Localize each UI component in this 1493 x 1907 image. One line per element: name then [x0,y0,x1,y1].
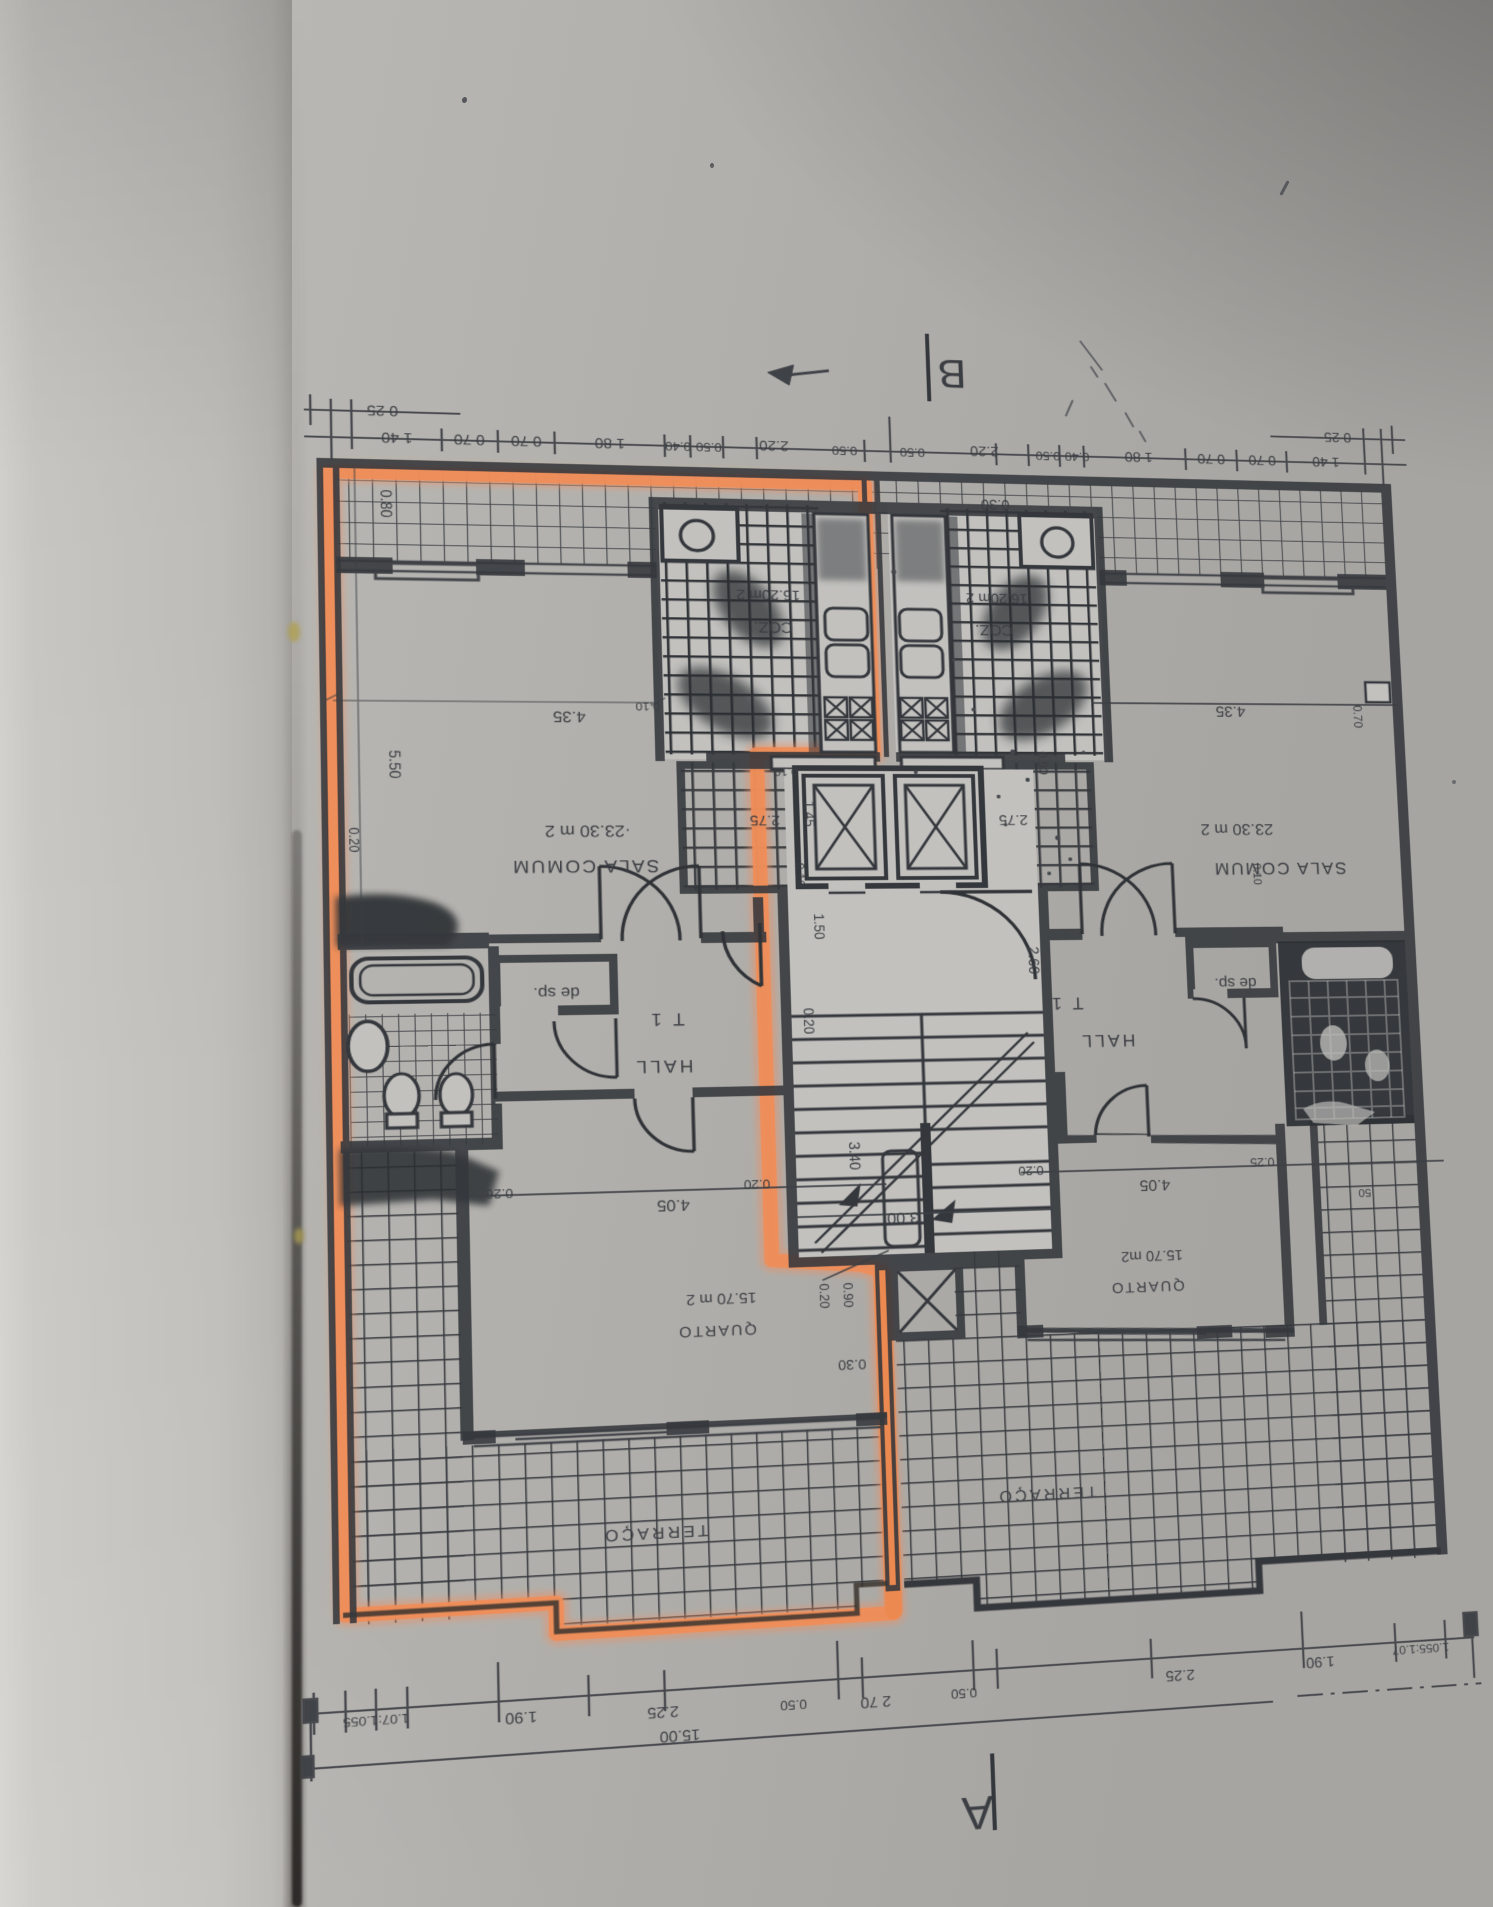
svg-text:0.26: 0.26 [486,1186,514,1201]
svg-text:0.20: 0.20 [800,1008,817,1035]
svg-text:0 25: 0 25 [1324,429,1352,444]
svg-text:QUARTO: QUARTO [1110,1277,1185,1296]
svg-text:COZ.: COZ. [754,618,793,635]
svg-text:23.30 m 2: 23.30 m 2 [1200,821,1273,839]
svg-text:A: A [960,1785,994,1840]
svg-text:0.25: 0.25 [1250,1155,1275,1169]
svg-text:0.70: 0.70 [1350,705,1365,728]
svg-text:HALL: HALL [633,1056,694,1077]
svg-text:0.90: 0.90 [840,1282,856,1307]
svg-text:0.30: 0.30 [838,1356,867,1373]
svg-text:0.50: 0.50 [832,444,858,458]
svg-text:0.10: 0.10 [1250,863,1264,885]
svg-text:B: B [937,351,968,397]
svg-text:2.60: 2.60 [1024,946,1042,974]
svg-text:15.70 m2: 15.70 m2 [1121,1246,1183,1264]
svg-text:0.50: 0.50 [780,1697,807,1714]
svg-text:1 40: 1 40 [381,429,413,446]
svg-text:0.20: 0.20 [744,1177,771,1192]
svg-text:4.05: 4.05 [1139,1176,1170,1194]
svg-text:COZ.: COZ. [975,621,1013,638]
svg-text:0.30: 0.30 [981,496,1010,512]
svg-text:2.20: 2.20 [970,443,999,459]
svg-text:4.35: 4.35 [1215,703,1245,719]
svg-text:3.00: 3.00 [887,1209,919,1227]
svg-text:1.90: 1.90 [1306,1652,1335,1670]
svg-text:0.50: 0.50 [951,1685,978,1701]
svg-text:50: 50 [1358,1186,1371,1199]
svg-text:2.75: 2.75 [750,812,780,828]
svg-text:1 40: 1 40 [1312,454,1340,469]
svg-text:16.20m 2: 16.20m 2 [966,590,1028,606]
svg-text:0.50: 0.50 [1035,449,1060,463]
svg-text:0.50: 0.50 [696,440,722,454]
svg-text:0.50: 0.50 [900,445,926,459]
svg-text:2.25: 2.25 [1165,1666,1195,1684]
svg-text:0.40: 0.40 [1065,450,1090,464]
svg-text:0.10: 0.10 [774,765,798,778]
svg-text:0.10: 0.10 [635,700,660,713]
svg-text:1 80: 1 80 [1124,449,1153,465]
svg-text:2 70: 2 70 [860,1692,891,1711]
svg-text:HALL: HALL [1079,1031,1136,1051]
svg-text:0.80: 0.80 [376,489,394,517]
svg-text:3.40: 3.40 [845,1141,863,1170]
svg-text:0 70: 0 70 [1197,451,1225,467]
svg-text:1.45: 1.45 [800,801,817,827]
svg-text:0.20: 0.20 [346,827,362,852]
svg-text:1 80: 1 80 [594,435,625,451]
svg-text:15.70 m 2: 15.70 m 2 [686,1289,757,1308]
svg-text:0.10: 0.10 [792,863,808,887]
svg-text:0.20: 0.20 [1018,1163,1044,1178]
svg-text:SALA COMUM: SALA COMUM [511,856,660,877]
svg-text:2.25: 2.25 [647,1702,679,1721]
svg-text:0 25: 0 25 [367,402,399,419]
svg-text:2.75: 2.75 [999,812,1029,828]
svg-text:1.07:1.055: 1.07:1.055 [343,1711,410,1731]
svg-text:QUARTO: QUARTO [677,1320,757,1340]
svg-text:15.00: 15.00 [659,1725,700,1745]
svg-text:2.20: 2.20 [759,437,789,453]
svg-text:5.50: 5.50 [385,750,403,779]
svg-text:16.20m 2: 16.20m 2 [736,586,800,602]
svg-text:de sp.: de sp. [1214,974,1257,991]
svg-text:T 1: T 1 [1049,994,1084,1014]
svg-text:T 1: T 1 [648,1010,685,1031]
svg-text:0.20: 0.20 [816,1283,832,1308]
svg-text:de sp.: de sp. [533,984,580,1002]
svg-text:0 70: 0 70 [454,431,485,448]
svg-text:4.35: 4.35 [553,708,586,725]
svg-text:1.50: 1.50 [810,913,827,939]
svg-text:0 70: 0 70 [511,432,542,448]
svg-text:4.05: 4.05 [657,1196,690,1214]
svg-text:·23.30 m 2: ·23.30 m 2 [545,822,631,841]
svg-text:1.90: 1.90 [505,1707,538,1726]
svg-text:0 70: 0 70 [1248,452,1276,468]
svg-text:SALA COMUM: SALA COMUM [1213,859,1347,879]
svg-text:0.40: 0.40 [665,439,691,453]
svg-text:0.90: 0.90 [1035,751,1050,775]
